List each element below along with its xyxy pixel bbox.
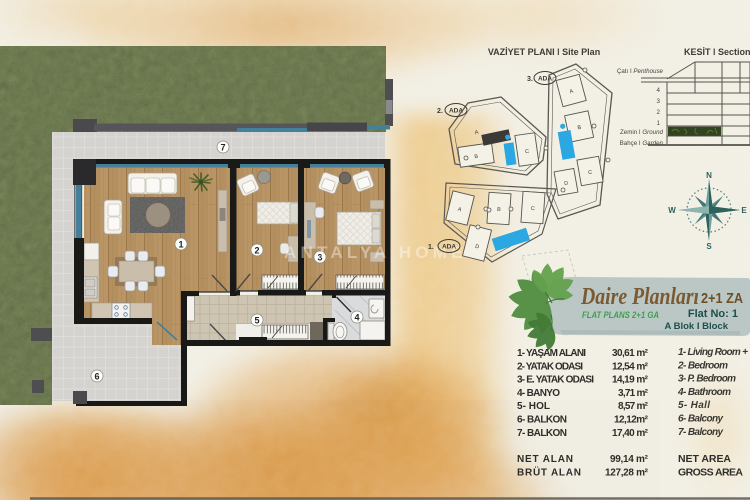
svg-text:N: N bbox=[706, 171, 712, 180]
svg-text:127,28 m²: 127,28 m² bbox=[605, 467, 649, 478]
svg-text:1.: 1. bbox=[428, 244, 434, 251]
svg-text:S: S bbox=[706, 242, 712, 251]
svg-text:2- YATAK ODASI: 2- YATAK ODASI bbox=[517, 361, 583, 372]
svg-text:Çatı I Penthouse: Çatı I Penthouse bbox=[617, 68, 664, 75]
svg-text:6- BALKON: 6- BALKON bbox=[517, 415, 567, 426]
svg-text:14,19 m²: 14,19 m² bbox=[612, 375, 649, 386]
svg-text:17,40 m²: 17,40 m² bbox=[612, 428, 649, 439]
svg-text:3- P. Bedroom: 3- P. Bedroom bbox=[678, 374, 736, 385]
svg-text:30,61 m²: 30,61 m² bbox=[612, 348, 649, 359]
svg-text:3.: 3. bbox=[527, 76, 533, 83]
svg-text:W: W bbox=[668, 206, 676, 215]
svg-text:ADA: ADA bbox=[442, 244, 456, 251]
svg-text:1- YAŞAM ALANI: 1- YAŞAM ALANI bbox=[517, 348, 586, 359]
svg-text:VAZİYET PLANI I Site Plan: VAZİYET PLANI I Site Plan bbox=[488, 47, 600, 57]
svg-text:2: 2 bbox=[657, 109, 661, 116]
svg-text:GROSS AREA: GROSS AREA bbox=[678, 466, 743, 478]
svg-text:7- BALKON: 7- BALKON bbox=[517, 428, 567, 439]
svg-text:E: E bbox=[741, 206, 747, 215]
svg-text:1: 1 bbox=[657, 120, 661, 127]
svg-text:6: 6 bbox=[94, 372, 99, 382]
svg-text:5- Hall: 5- Hall bbox=[678, 400, 710, 411]
svg-text:7: 7 bbox=[220, 143, 225, 153]
svg-text:3- E. YATAK ODASI: 3- E. YATAK ODASI bbox=[517, 375, 594, 386]
svg-text:2- Bedroom: 2- Bedroom bbox=[677, 360, 728, 371]
svg-text:NET AREA: NET AREA bbox=[678, 453, 731, 465]
svg-text:2+1 ZA: 2+1 ZA bbox=[701, 290, 743, 307]
svg-text:ADA: ADA bbox=[449, 108, 463, 115]
svg-text:4- Bathroom: 4- Bathroom bbox=[677, 387, 731, 398]
svg-text:Daire Planları: Daire Planları bbox=[580, 284, 699, 310]
svg-text:2: 2 bbox=[254, 246, 259, 256]
svg-text:8,57 m²: 8,57 m² bbox=[618, 401, 649, 412]
svg-text:FLAT PLANS 2+1 GA: FLAT PLANS 2+1 GA bbox=[582, 310, 659, 321]
svg-text:3,71 m²: 3,71 m² bbox=[618, 388, 649, 399]
svg-text:4: 4 bbox=[657, 87, 661, 94]
svg-text:C: C bbox=[525, 149, 530, 155]
svg-text:99,14 m²: 99,14 m² bbox=[610, 454, 649, 465]
svg-text:5- HOL: 5- HOL bbox=[517, 401, 550, 412]
svg-text:KESİT I Section: KESİT I Section bbox=[684, 47, 750, 57]
svg-text:ADA: ADA bbox=[538, 76, 552, 83]
svg-text:NET ALAN: NET ALAN bbox=[517, 454, 573, 465]
svg-text:12,12m²: 12,12m² bbox=[614, 415, 649, 426]
svg-text:6- Balcony: 6- Balcony bbox=[678, 414, 723, 425]
svg-text:BRÜT ALAN: BRÜT ALAN bbox=[517, 465, 581, 478]
svg-text:5: 5 bbox=[254, 316, 259, 326]
svg-text:3: 3 bbox=[657, 98, 661, 105]
svg-text:1: 1 bbox=[178, 240, 183, 250]
svg-text:7- Balcony: 7- Balcony bbox=[678, 427, 723, 438]
svg-text:Bahçe I Garden: Bahçe I Garden bbox=[620, 140, 664, 147]
svg-text:12,54 m²: 12,54 m² bbox=[612, 361, 649, 372]
svg-text:4: 4 bbox=[354, 313, 359, 323]
svg-text:Flat No: 1: Flat No: 1 bbox=[688, 308, 738, 320]
svg-text:A Blok I Block: A Blok I Block bbox=[664, 321, 728, 332]
svg-text:1- Living Room +: 1- Living Room + bbox=[678, 347, 748, 358]
svg-text:4- BANYO: 4- BANYO bbox=[517, 388, 560, 399]
svg-text:2.: 2. bbox=[437, 108, 443, 115]
svg-text:Zemin I Ground: Zemin I Ground bbox=[620, 129, 664, 136]
svg-text:C: C bbox=[531, 206, 535, 212]
